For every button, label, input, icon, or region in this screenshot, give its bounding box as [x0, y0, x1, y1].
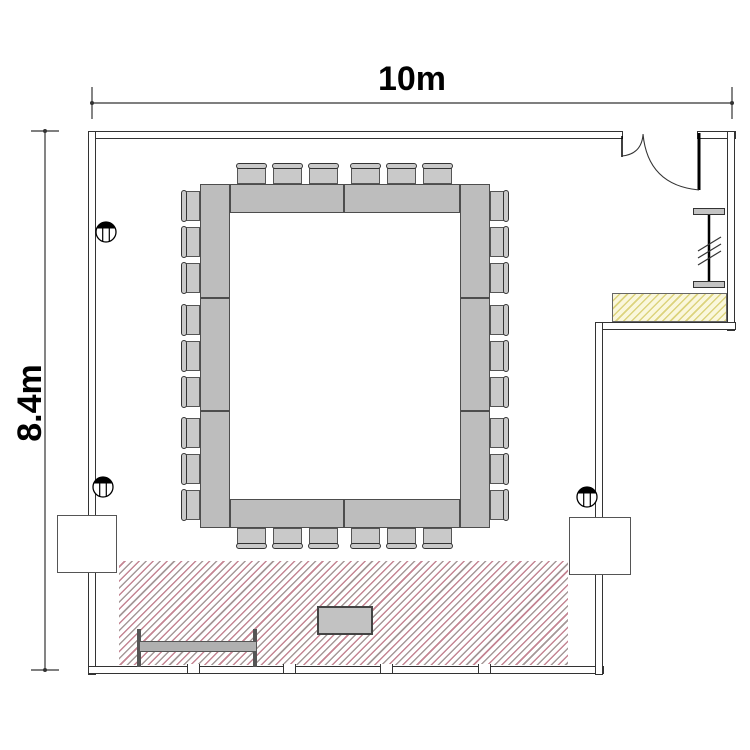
chair	[351, 163, 380, 184]
door-icon	[622, 133, 699, 190]
chair-seat	[423, 168, 452, 184]
chair-seat	[185, 490, 200, 520]
chair	[181, 418, 200, 448]
chair	[237, 528, 266, 549]
chair	[181, 227, 200, 257]
chair	[273, 528, 302, 549]
chair-seat	[387, 528, 416, 544]
dimension-label-width: 10m	[337, 60, 487, 99]
chair-seat	[423, 528, 452, 544]
chair	[181, 377, 200, 407]
chair-seat	[185, 454, 200, 484]
floor-marker-icon	[577, 487, 597, 507]
chair-backrest	[503, 417, 509, 449]
floor-marker-icon	[96, 222, 116, 242]
pilaster-left	[57, 515, 117, 573]
chair	[423, 163, 452, 184]
chair	[490, 418, 509, 448]
dimension-end-dot	[90, 101, 94, 105]
chair-backrest	[236, 163, 267, 169]
chair-backrest	[181, 190, 187, 222]
chair-backrest	[181, 376, 187, 408]
dimension-label-height: 8.4m	[9, 328, 51, 478]
table-segment-bottom	[344, 499, 460, 528]
chair	[490, 263, 509, 293]
chair-backrest	[503, 340, 509, 372]
chair	[181, 490, 200, 520]
chair-backrest	[308, 543, 339, 549]
chair-backrest	[503, 262, 509, 294]
table-segment-top	[344, 184, 460, 213]
chair-backrest	[181, 262, 187, 294]
chair-backrest	[308, 163, 339, 169]
chair-backrest	[181, 340, 187, 372]
dimension-end-dot	[43, 668, 47, 672]
table-segment-left	[200, 298, 230, 411]
chair	[490, 490, 509, 520]
chair-backrest	[181, 226, 187, 258]
chair	[423, 528, 452, 549]
window-mullion	[187, 664, 200, 673]
chair	[181, 454, 200, 484]
dimension-end-dot	[43, 129, 47, 133]
partition-cap	[693, 281, 725, 288]
chair-backrest	[422, 543, 453, 549]
floor-marker-icon	[93, 477, 113, 497]
partition-cap	[693, 208, 725, 215]
chair	[181, 341, 200, 371]
chair-seat	[237, 168, 266, 184]
chair	[273, 163, 302, 184]
chair	[181, 305, 200, 335]
wall-right-upper	[727, 131, 735, 331]
wall-right-lower	[595, 322, 603, 675]
table-segment-right	[460, 411, 490, 528]
chair	[237, 163, 266, 184]
chair-seat	[351, 168, 380, 184]
chair	[387, 163, 416, 184]
chair-backrest	[422, 163, 453, 169]
chair-backrest	[181, 453, 187, 485]
chair	[387, 528, 416, 549]
wall-left	[88, 131, 96, 675]
floor-plan: 10m 8.4m	[0, 0, 750, 750]
table-segment-right	[460, 298, 490, 411]
chair-seat	[351, 528, 380, 544]
chair	[490, 377, 509, 407]
floor-markers	[93, 222, 597, 507]
chair	[490, 305, 509, 335]
chair-backrest	[236, 543, 267, 549]
chair-backrest	[350, 543, 381, 549]
chair-backrest	[386, 163, 417, 169]
chair-seat	[309, 528, 338, 544]
chair	[309, 163, 338, 184]
counter	[612, 293, 727, 322]
chair	[490, 454, 509, 484]
pilaster-right	[569, 517, 631, 575]
table-segment-right	[460, 184, 490, 298]
chair	[490, 227, 509, 257]
table-segment-bottom	[230, 499, 344, 528]
chair-backrest	[181, 304, 187, 336]
chair-backrest	[272, 163, 303, 169]
chair-backrest	[386, 543, 417, 549]
chair	[490, 191, 509, 221]
chair	[351, 528, 380, 549]
chair	[181, 191, 200, 221]
wall-top-left	[88, 131, 623, 139]
dimension-end-dot	[730, 101, 734, 105]
chair-backrest	[503, 190, 509, 222]
chair-seat	[387, 168, 416, 184]
table-segment-left	[200, 184, 230, 298]
chair-seat	[185, 227, 200, 257]
chair-backrest	[503, 453, 509, 485]
partition-icon	[698, 215, 721, 281]
chair-seat	[273, 528, 302, 544]
chair-backrest	[181, 489, 187, 521]
chair-backrest	[503, 304, 509, 336]
window-mullion	[478, 664, 491, 673]
chair-seat	[185, 341, 200, 371]
bench	[139, 641, 257, 652]
chair-backrest	[181, 417, 187, 449]
chair-backrest	[503, 226, 509, 258]
chair-seat	[237, 528, 266, 544]
wall-alcove-bottom	[595, 322, 736, 330]
chair	[309, 528, 338, 549]
chair	[490, 341, 509, 371]
table-segment-top	[230, 184, 344, 213]
chair-backrest	[272, 543, 303, 549]
chair-backrest	[350, 163, 381, 169]
window-mullion	[283, 664, 296, 673]
chair-seat	[273, 168, 302, 184]
table-segment-left	[200, 411, 230, 528]
window-mullion	[380, 664, 393, 673]
chair-backrest	[503, 376, 509, 408]
chair	[181, 263, 200, 293]
chair-seat	[185, 377, 200, 407]
chair-seat	[185, 263, 200, 293]
chair-seat	[309, 168, 338, 184]
chair-seat	[185, 418, 200, 448]
chair-seat	[185, 305, 200, 335]
chair-seat	[185, 191, 200, 221]
wall-bottom	[88, 666, 604, 674]
chair-backrest	[503, 489, 509, 521]
podium-table	[317, 606, 373, 635]
